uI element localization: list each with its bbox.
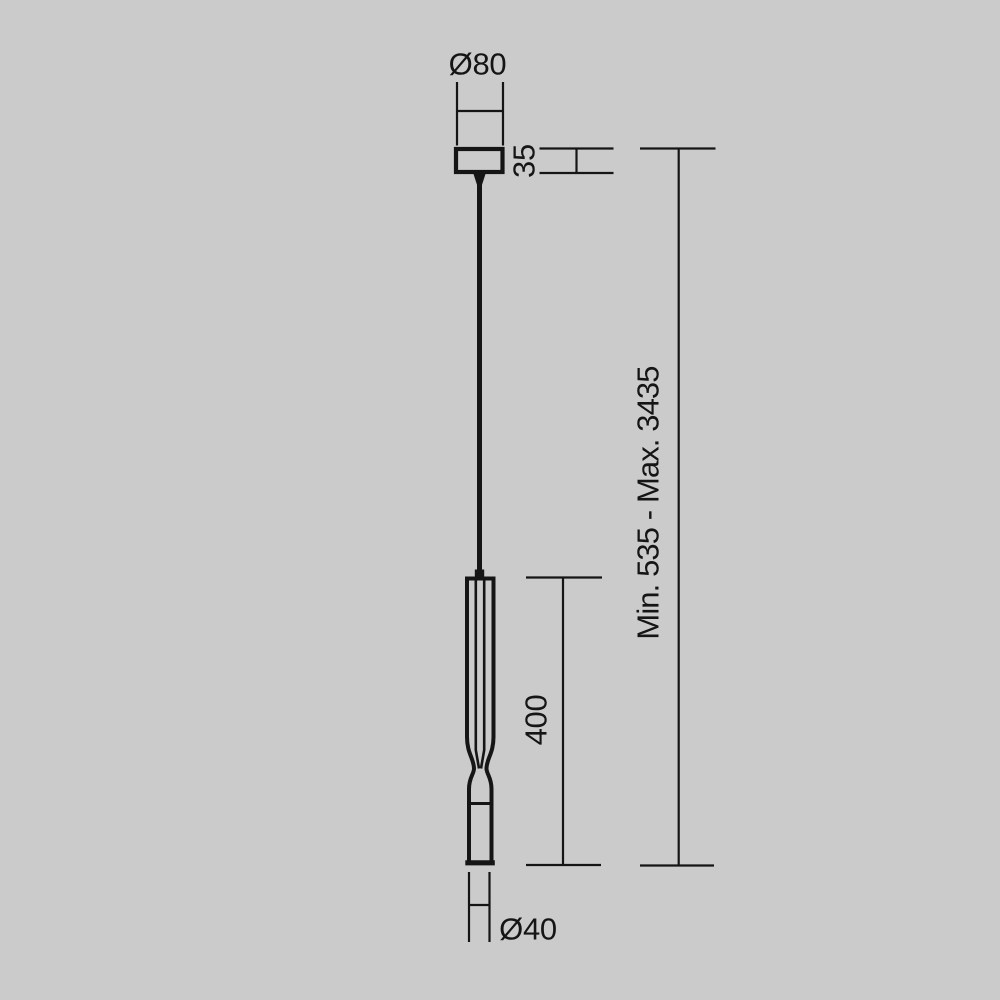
dimension-label-body-height: 400: [521, 695, 552, 746]
dimension-label-body-diameter: Ø40: [499, 914, 557, 945]
pendant-lamp-dimension-drawing: Ø80 35 Min. 535 - Max. 3435 400 Ø40: [0, 0, 1000, 1000]
tube-outline-right: [486, 579, 493, 861]
pendant-lamp: [456, 149, 503, 863]
dimension-label-canopy-diameter: Ø80: [449, 49, 507, 80]
dimension-canopy-height-lines: [540, 149, 614, 174]
dimension-label-canopy-height: 35: [509, 144, 540, 178]
inner-rod-right: [481, 581, 484, 769]
dimension-canopy-diameter-lines: [457, 82, 503, 146]
tube-outline-left: [467, 579, 474, 861]
drawing-geometry: [0, 0, 1000, 1000]
inner-rod-left: [476, 581, 479, 769]
ceiling-canopy: [456, 149, 503, 172]
dimension-label-suspension-height: Min. 535 - Max. 3435: [633, 366, 664, 639]
cable-connector: [475, 570, 484, 578]
dimension-lines: [457, 82, 716, 942]
dimension-body-diameter-lines: [469, 872, 490, 942]
